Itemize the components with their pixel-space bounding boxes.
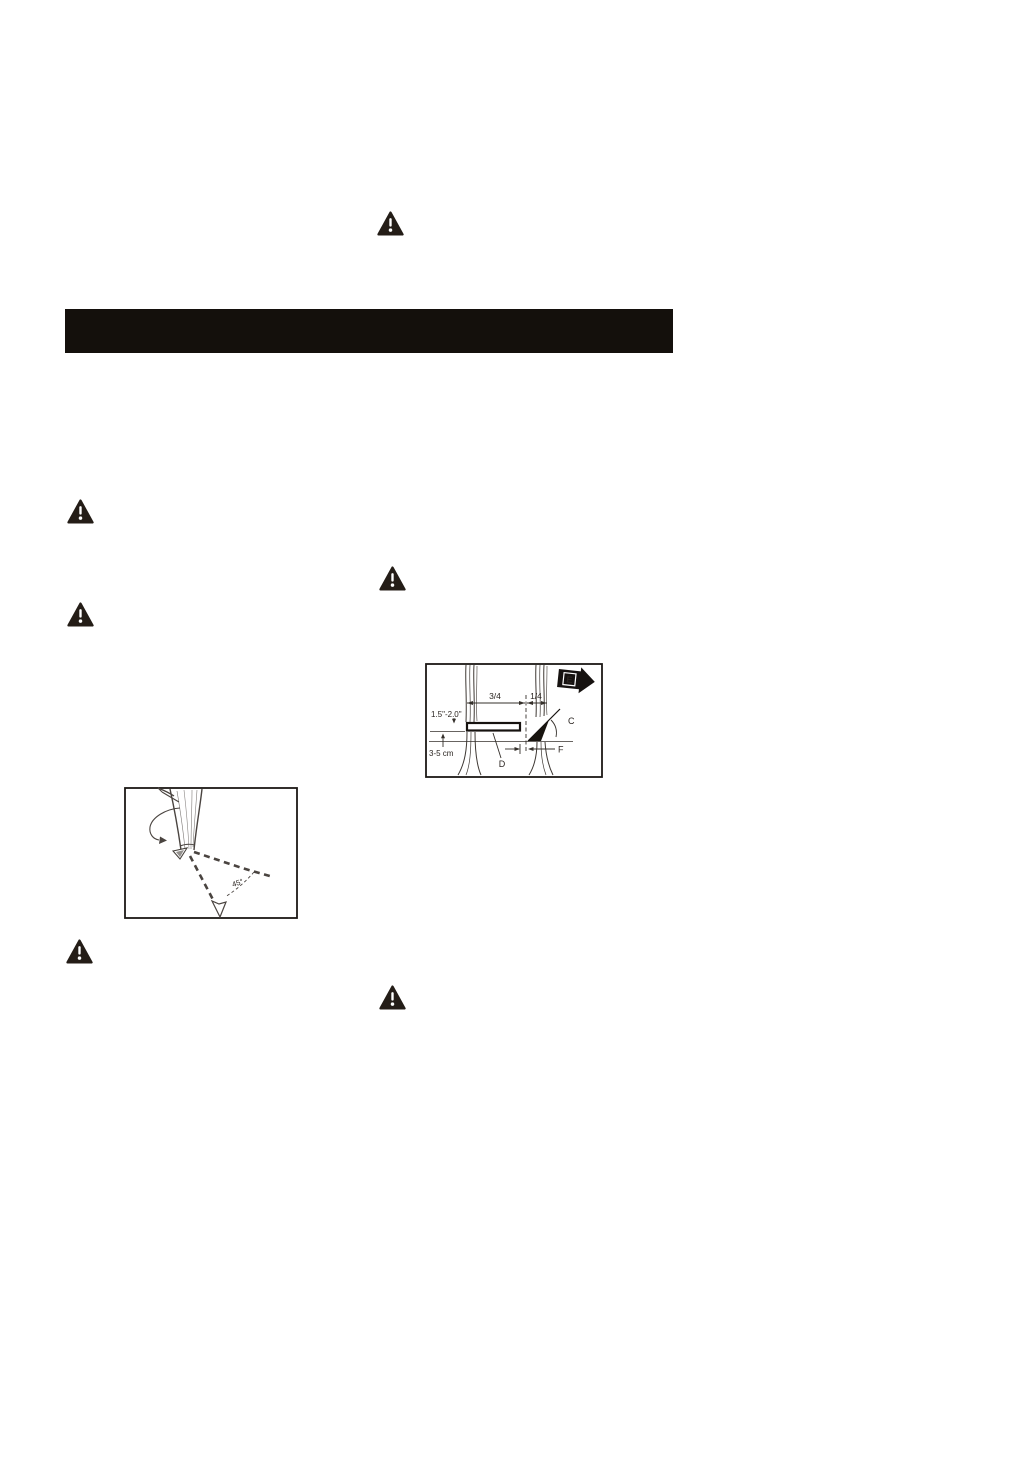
warning-triangle-icon <box>67 602 94 627</box>
fall-direction-label: E <box>566 674 573 685</box>
notch-angle-label: C <box>568 716 575 726</box>
warning-triangle-icon <box>379 985 406 1010</box>
manual-page: 45° <box>0 0 1032 1458</box>
hinge-width-label: F <box>558 745 564 755</box>
section-header-bar <box>65 309 673 353</box>
warning-triangle-icon <box>66 939 93 964</box>
figure-felling-direction: 45° <box>124 787 298 924</box>
felling-cut-slot <box>467 723 520 731</box>
ratio-left-label: 3/4 <box>489 691 501 701</box>
warning-triangle-icon <box>377 211 404 236</box>
ratio-right-label: 1/4 <box>530 691 542 701</box>
figure-felling-cuts: E 3/4 1/4 <box>425 663 603 783</box>
felling-cut-label: D <box>499 759 506 769</box>
warning-triangle-icon <box>67 499 94 524</box>
stump-height-label: 3-5 cm <box>429 749 454 758</box>
warning-triangle-icon <box>379 566 406 591</box>
cut-height-label: 1.5"-2.0" <box>431 710 462 719</box>
